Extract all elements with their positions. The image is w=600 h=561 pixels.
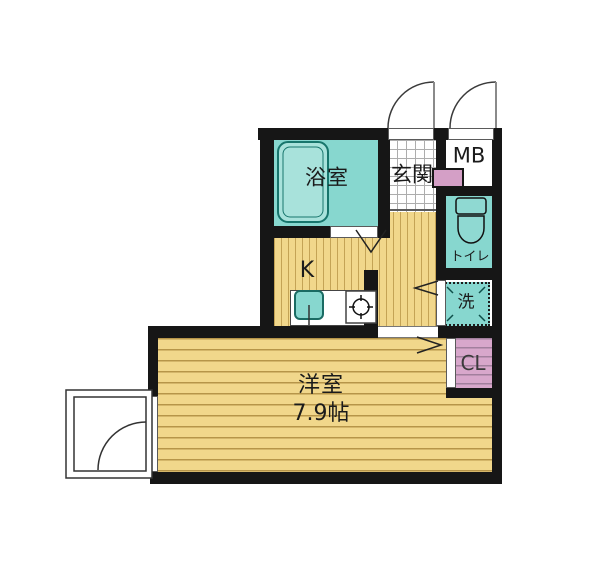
wall (492, 128, 502, 484)
bathroom-door-threshold (330, 226, 378, 238)
kitchen-label: K (300, 260, 314, 282)
balcony-door-opening (146, 396, 158, 472)
wall (148, 326, 158, 396)
mb-door-icon (450, 82, 496, 128)
wall (438, 326, 502, 338)
western-room-size-label: 7.9帖 (293, 403, 350, 425)
wall (150, 472, 502, 484)
closet-door (446, 338, 456, 388)
wall (436, 268, 492, 280)
mb-door-threshold (448, 128, 494, 140)
wall (378, 128, 390, 238)
toilet-label: トイレ (450, 251, 489, 264)
entrance-door-icon (388, 82, 434, 128)
western-room-label: 洋室 (298, 375, 344, 397)
entrance-door-threshold (388, 128, 434, 140)
bathroom-label: 浴室 (305, 168, 349, 189)
entrance-label: 玄関 (391, 165, 433, 186)
laundry-label: 洗 (458, 295, 475, 312)
hall-room-opening (378, 326, 438, 338)
wall (364, 270, 378, 326)
balcony-door-icon (66, 390, 152, 478)
laundry-door (436, 280, 446, 326)
closet-label: CL (460, 353, 485, 373)
mb-label: MB (453, 146, 486, 167)
entrance-step-line (388, 209, 436, 211)
floor-plan: 浴室 玄関 MB トイレ K 洗 CL 洋室 7.9帖 (0, 0, 600, 561)
wall (260, 226, 330, 238)
wall (258, 128, 388, 140)
pipe-shaft (432, 168, 464, 188)
wall (446, 388, 502, 398)
wall (436, 128, 446, 280)
wall (148, 326, 378, 338)
